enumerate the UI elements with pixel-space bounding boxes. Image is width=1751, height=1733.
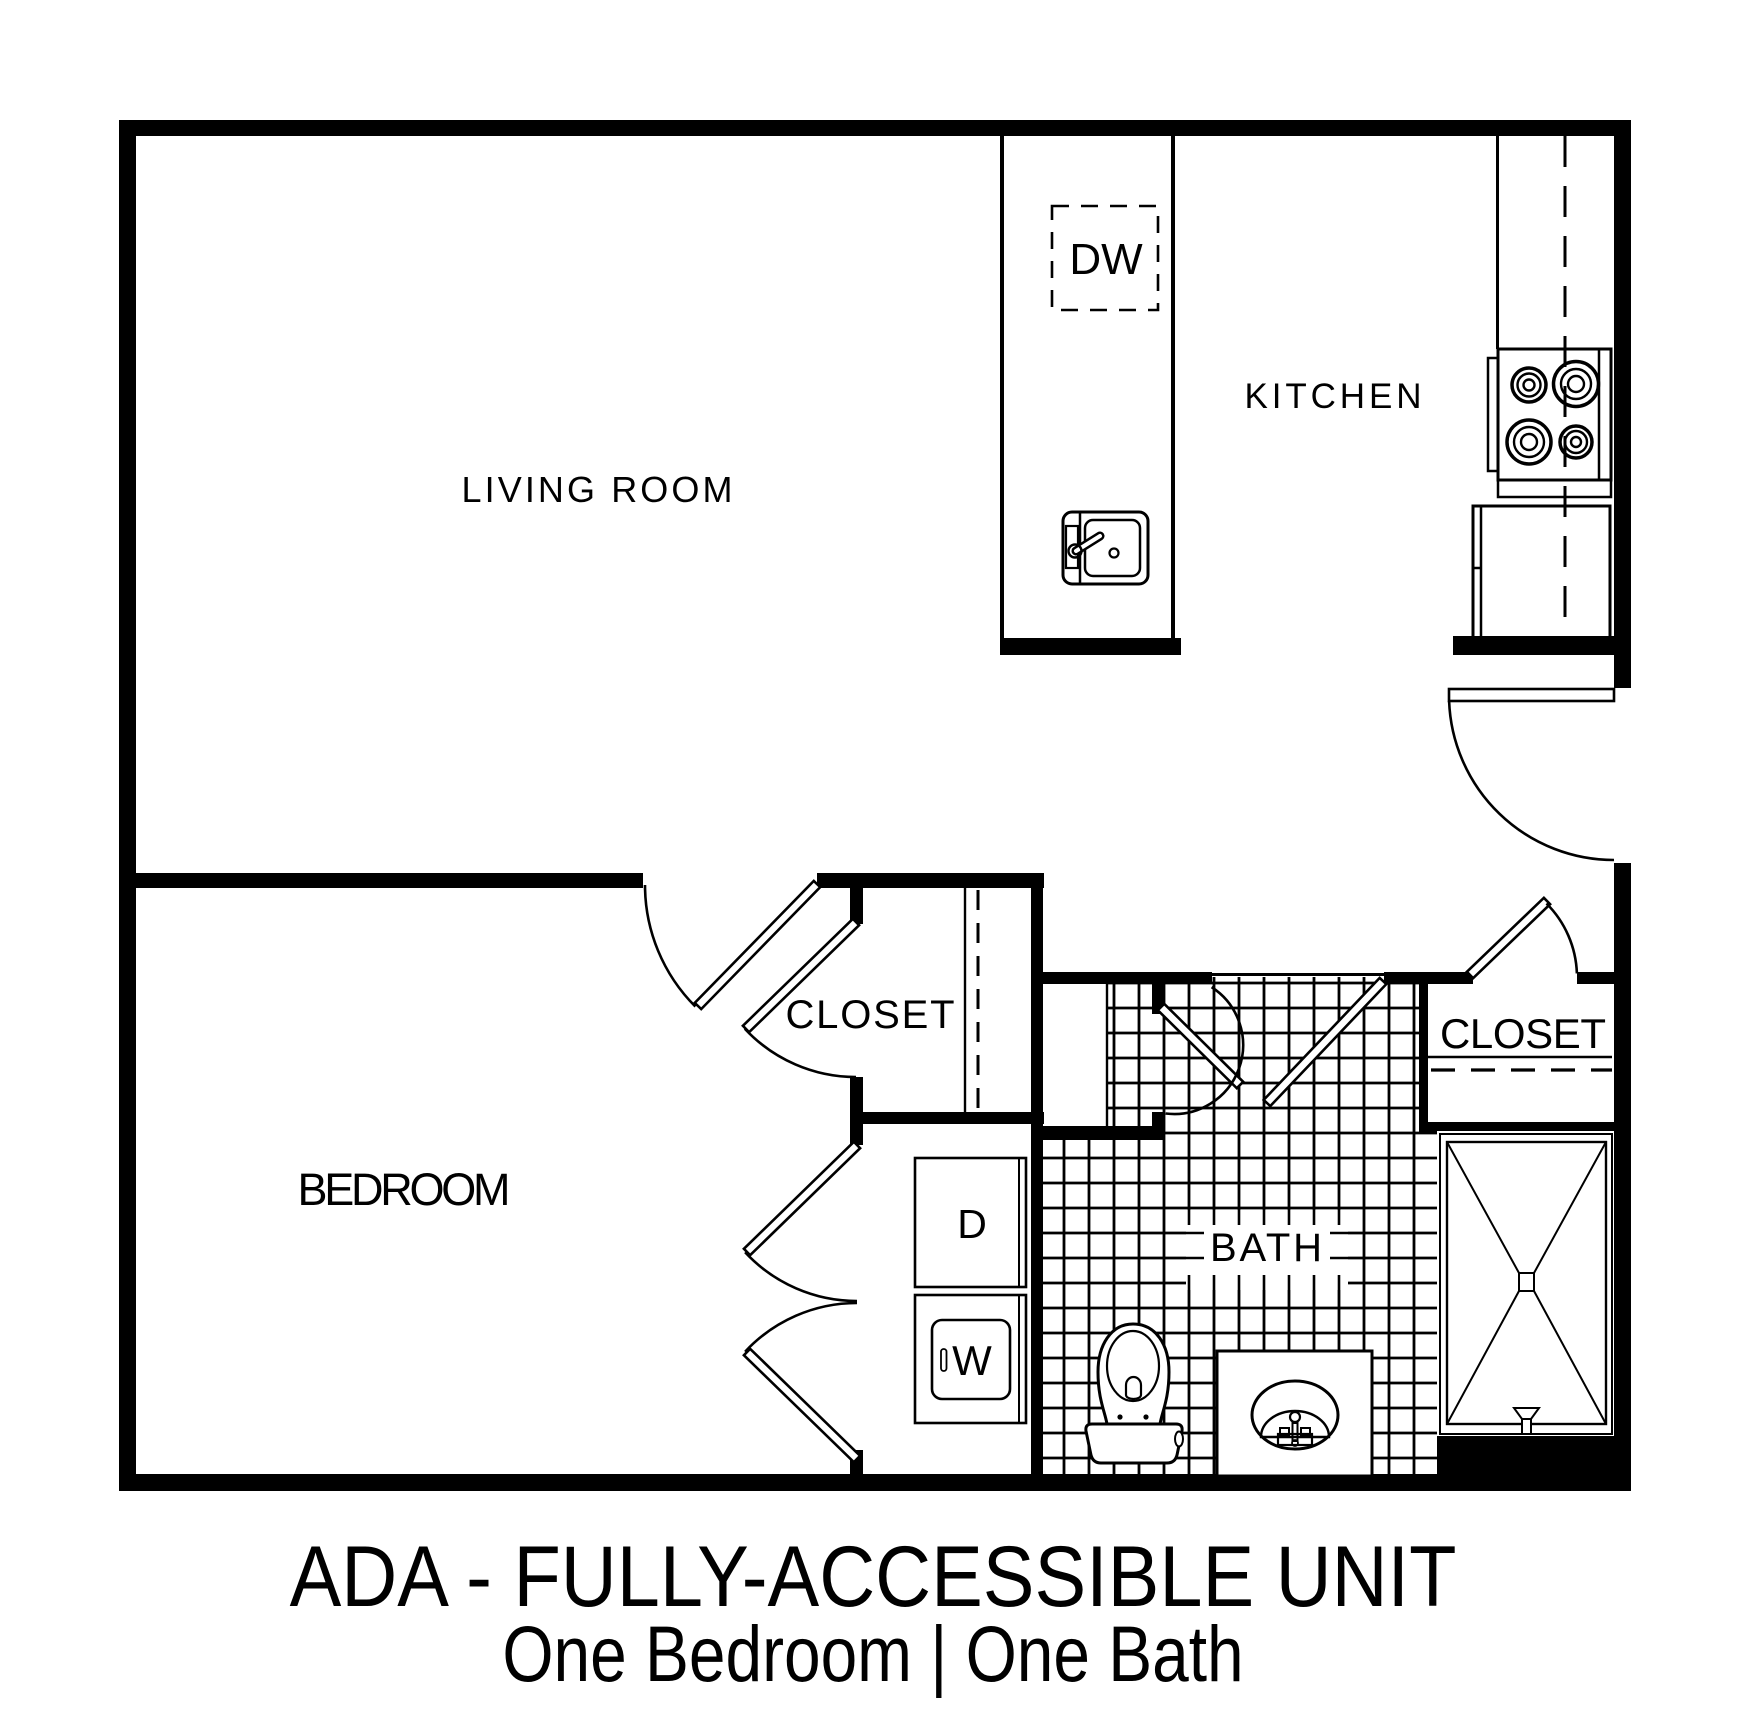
svg-text:BEDROOM: BEDROOM [298,1164,511,1215]
svg-text:DW: DW [1069,235,1143,284]
svg-text:One Bedroom | One Bath: One Bedroom | One Bath [502,1610,1243,1698]
svg-text:D: D [957,1201,987,1247]
svg-text:CLOSET: CLOSET [786,993,955,1037]
svg-text:W: W [952,1337,992,1384]
svg-text:CLOSET: CLOSET [1440,1010,1606,1057]
svg-text:BATH: BATH [1210,1226,1322,1270]
